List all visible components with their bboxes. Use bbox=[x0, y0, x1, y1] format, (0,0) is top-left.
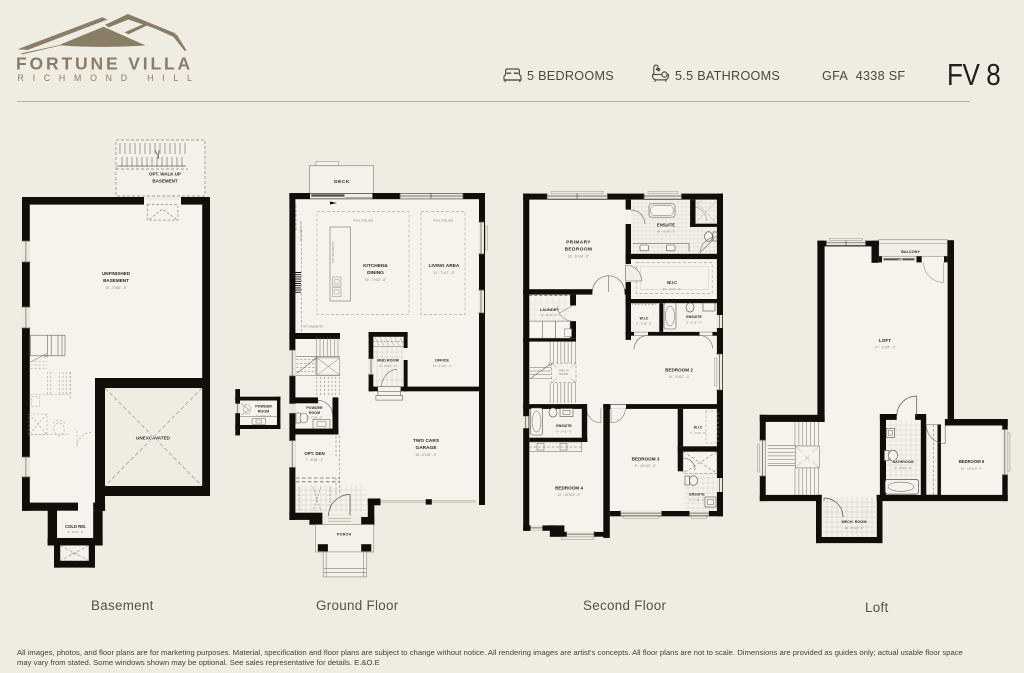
svg-text:6' - 0"x5' - 0": 6' - 0"x5' - 0" bbox=[636, 322, 652, 326]
svg-text:10' - 6"x10' - 0": 10' - 6"x10' - 0" bbox=[845, 526, 864, 530]
svg-text:8' - 0"x5' - 0": 8' - 0"x5' - 0" bbox=[686, 321, 702, 325]
svg-text:6' - 7"x6' - 6": 6' - 7"x6' - 6" bbox=[690, 431, 706, 435]
svg-text:DECK: DECK bbox=[334, 179, 350, 185]
svg-text:OPT. WALK UP: OPT. WALK UP bbox=[149, 172, 181, 177]
svg-text:8' - 9"x4' - 0": 8' - 9"x4' - 0" bbox=[67, 530, 83, 534]
svg-text:BATHROOM: BATHROOM bbox=[893, 460, 914, 464]
svg-text:9' - 0"x6' - 0": 9' - 0"x6' - 0" bbox=[542, 313, 558, 317]
svg-text:BEDROOM 5: BEDROOM 5 bbox=[959, 459, 985, 464]
svg-text:14' - 0"x12' - 0": 14' - 0"x12' - 0" bbox=[668, 375, 689, 379]
svg-text:W.I.C: W.I.C bbox=[667, 280, 677, 285]
svg-text:W.I.C: W.I.C bbox=[640, 317, 649, 321]
svg-text:6' - 6"x10' - 6": 6' - 6"x10' - 6" bbox=[379, 364, 396, 368]
svg-text:BEDROOM: BEDROOM bbox=[565, 247, 593, 253]
svg-text:19' - 3"x30' - 8": 19' - 3"x30' - 8" bbox=[105, 286, 126, 290]
svg-text:16' - 7"x22' - 8": 16' - 7"x22' - 8" bbox=[365, 278, 386, 282]
svg-text:POWDER: POWDER bbox=[255, 405, 272, 409]
svg-text:ENSUITE: ENSUITE bbox=[689, 493, 705, 497]
svg-text:UNFINISHED: UNFINISHED bbox=[102, 271, 131, 276]
svg-text:BASEMENT: BASEMENT bbox=[103, 278, 129, 283]
svg-text:BELOW: BELOW bbox=[559, 373, 568, 376]
svg-text:GARAGE: GARAGE bbox=[415, 445, 437, 451]
svg-text:OPT CABINETRY: OPT CABINETRY bbox=[299, 220, 303, 241]
svg-text:MECH. ROOM: MECH. ROOM bbox=[841, 520, 866, 524]
svg-text:12' - 10"x13' - 0": 12' - 10"x13' - 0" bbox=[557, 493, 580, 497]
svg-text:OPT CABINETRY: OPT CABINETRY bbox=[303, 325, 324, 329]
svg-text:RICHMOND HILL: RICHMOND HILL bbox=[18, 73, 201, 83]
svg-text:2' - 7"x8' - 0": 2' - 7"x8' - 0" bbox=[307, 415, 323, 419]
svg-text:7' - 7"x4' - 0": 7' - 7"x4' - 0" bbox=[256, 414, 271, 418]
svg-text:5' - 0"x10' - 6": 5' - 0"x10' - 6" bbox=[894, 466, 911, 470]
svg-text:W.I.C: W.I.C bbox=[694, 426, 703, 430]
svg-text:9' - 10"x13' - 4": 9' - 10"x13' - 4" bbox=[635, 464, 656, 468]
svg-text:PORCH: PORCH bbox=[337, 533, 352, 537]
svg-text:MUD ROOM: MUD ROOM bbox=[377, 359, 399, 363]
svg-text:ENSUITE: ENSUITE bbox=[686, 315, 702, 319]
svg-text:ROOM: ROOM bbox=[309, 411, 320, 415]
svg-text:TWO CARS: TWO CARS bbox=[413, 438, 440, 444]
svg-text:OPEN TO: OPEN TO bbox=[558, 370, 569, 373]
svg-text:ENSUITE: ENSUITE bbox=[657, 222, 675, 227]
svg-text:LIVING AREA: LIVING AREA bbox=[429, 263, 460, 269]
svg-text:TRAY CEILING: TRAY CEILING bbox=[353, 219, 374, 223]
svg-text:BALCONY: BALCONY bbox=[901, 250, 920, 254]
svg-text:14' - 6"x8' - 7": 14' - 6"x8' - 7" bbox=[657, 229, 675, 233]
svg-text:UNEXCAVATED: UNEXCAVATED bbox=[136, 436, 171, 441]
svg-text:LAUNDRY: LAUNDRY bbox=[540, 307, 560, 312]
svg-text:BEDROOM 4: BEDROOM 4 bbox=[555, 486, 583, 491]
svg-text:OPT. DEN: OPT. DEN bbox=[304, 451, 324, 456]
svg-text:UNEX.: UNEX. bbox=[70, 552, 79, 556]
svg-text:16' - 6"x14' - 5": 16' - 6"x14' - 5" bbox=[568, 255, 589, 259]
svg-text:LOFT: LOFT bbox=[879, 338, 891, 343]
svg-text:BEDROOM 3: BEDROOM 3 bbox=[632, 457, 660, 462]
svg-text:14' - 6"x7' - 0": 14' - 6"x7' - 0" bbox=[663, 287, 681, 291]
svg-text:10' - 10"x10' - 0": 10' - 10"x10' - 0" bbox=[961, 467, 983, 471]
svg-text:DINING: DINING bbox=[367, 270, 384, 276]
svg-text:ENSUITE: ENSUITE bbox=[556, 424, 572, 428]
svg-text:18' - 0"x19' - 0": 18' - 0"x19' - 0" bbox=[415, 453, 436, 457]
svg-text:14' - 7"x17' - 0": 14' - 7"x17' - 0" bbox=[433, 271, 454, 275]
svg-text:7' - 6"x8' - 2": 7' - 6"x8' - 2" bbox=[306, 458, 324, 462]
svg-text:12' - 4"x10' - 2": 12' - 4"x10' - 2" bbox=[433, 364, 452, 368]
svg-text:BASEMENT: BASEMENT bbox=[152, 179, 178, 184]
svg-text:OFFICE: OFFICE bbox=[435, 359, 449, 363]
svg-text:17' - 1"x24' - 2": 17' - 1"x24' - 2" bbox=[874, 346, 895, 350]
svg-text:COLD RM.: COLD RM. bbox=[65, 524, 86, 529]
svg-text:6' - 7"x8' - 6": 6' - 7"x8' - 6" bbox=[689, 498, 705, 502]
svg-text:KITCHEN&: KITCHEN& bbox=[363, 263, 388, 269]
svg-text:OPT. BREAKFAST: OPT. BREAKFAST bbox=[331, 241, 335, 263]
svg-text:9' - 0"x5' - 0": 9' - 0"x5' - 0" bbox=[556, 430, 572, 434]
svg-text:PRIMARY: PRIMARY bbox=[566, 240, 591, 246]
svg-text:BEDROOM 2: BEDROOM 2 bbox=[665, 368, 693, 373]
svg-text:ROOM: ROOM bbox=[258, 409, 269, 413]
svg-text:POWDER: POWDER bbox=[306, 406, 323, 410]
svg-text:FORTUNE VILLA: FORTUNE VILLA bbox=[16, 54, 193, 74]
svg-text:TRAY CEILING: TRAY CEILING bbox=[433, 219, 454, 223]
